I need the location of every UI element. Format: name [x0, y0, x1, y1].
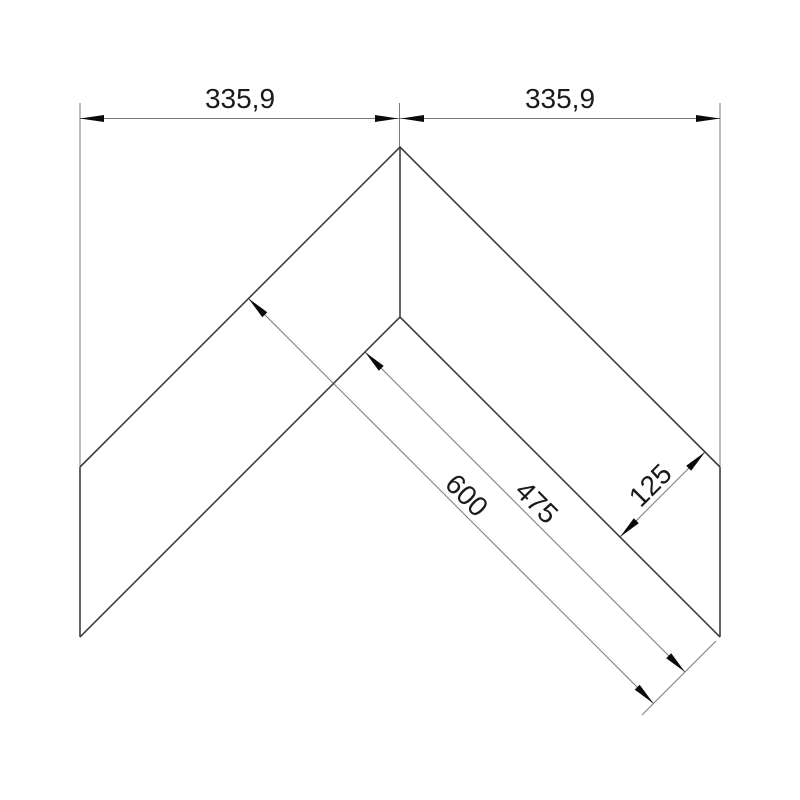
arrowhead-top-center-right	[401, 115, 424, 122]
arrowhead-top-left	[80, 115, 104, 122]
arrowhead-top-center-left	[375, 115, 398, 122]
dim-label-top-right-width: 335,9	[525, 83, 595, 114]
dim-label-outer-leg-length: 600	[439, 468, 494, 523]
arrowhead-600-end	[635, 685, 654, 704]
arrowhead-475-end	[666, 653, 685, 672]
profile-outline	[80, 147, 720, 637]
dim-label-top-left-width: 335,9	[205, 83, 275, 114]
arrowhead-475-start	[365, 352, 384, 371]
drawing-page: 335,9 335,9 600 475 125	[0, 0, 800, 800]
profile-inner-edge	[80, 317, 720, 637]
corner-profile-dimension-drawing: 335,9 335,9 600 475 125	[0, 0, 800, 800]
arrowhead-top-right	[696, 115, 720, 122]
arrowhead-125-outer	[686, 452, 705, 471]
dim-label-profile-width: 125	[623, 458, 678, 513]
dimension-labels: 335,9 335,9 600 475 125	[205, 83, 678, 530]
dim-label-inner-leg-length: 475	[509, 475, 564, 530]
arrowhead-600-start	[249, 299, 268, 318]
arrowhead-125-inner	[620, 518, 639, 537]
extension-line-bottom-right	[642, 641, 716, 715]
